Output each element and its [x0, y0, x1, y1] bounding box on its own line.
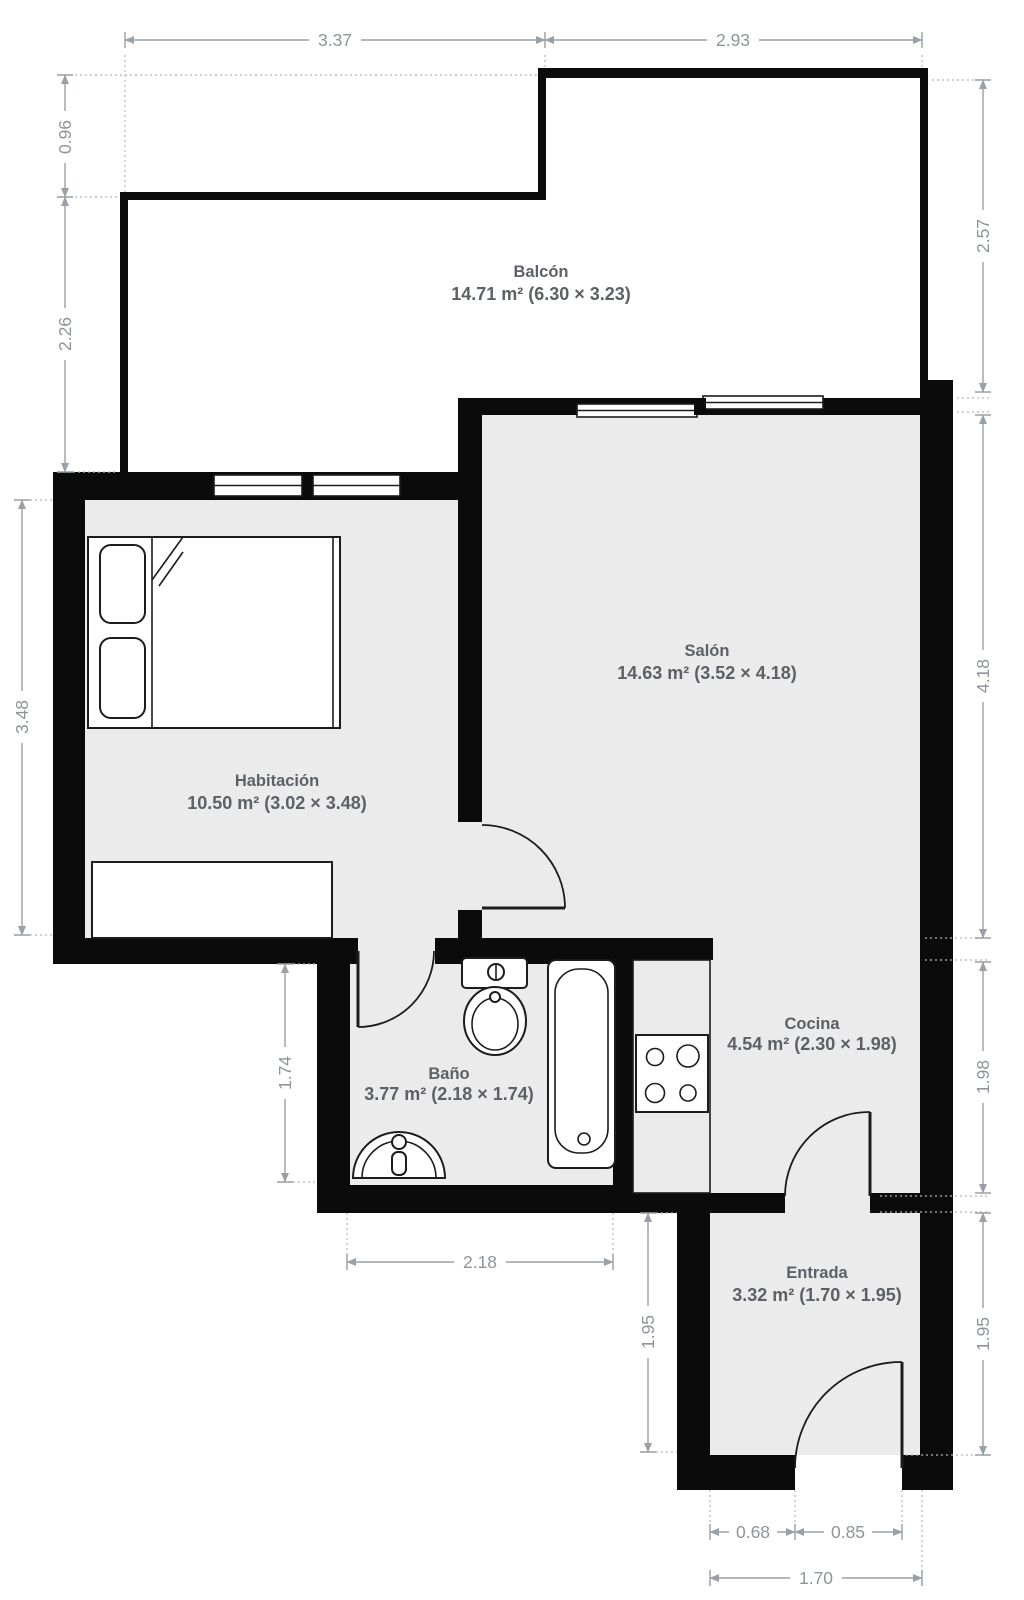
dim-entrada-width: 1.70 [799, 1568, 833, 1588]
dim-top-left: 3.37 [318, 30, 352, 50]
stove [636, 1035, 708, 1112]
room-area-cocina: 4.54 m² (2.30 × 1.98) [727, 1034, 897, 1054]
dim-top-right: 2.93 [716, 30, 750, 50]
room-area-bano: 3.77 m² (2.18 × 1.74) [364, 1084, 534, 1104]
dim-right-salon: 4.18 [973, 659, 993, 693]
room-label-entrada: Entrada [786, 1264, 848, 1282]
pillow [100, 638, 145, 718]
floor-entrada [710, 1213, 920, 1455]
dim-right-entrada: 1.95 [973, 1317, 993, 1351]
bed [88, 537, 340, 728]
dim-right-cocina: 1.98 [973, 1060, 993, 1094]
room-label-cocina: Cocina [784, 1015, 840, 1033]
floor-door-gap [785, 1193, 870, 1213]
dim-bath-height: 1.74 [275, 1056, 295, 1090]
room-label-balcon: Balcón [513, 263, 568, 281]
dim-left-upper: 0.96 [55, 120, 75, 154]
bathtub [548, 960, 615, 1168]
pillow [100, 545, 145, 623]
dim-right-balcony: 2.57 [973, 219, 993, 253]
dim-entry-offset: 0.68 [736, 1522, 770, 1542]
dim-left-mid: 2.26 [55, 317, 75, 351]
floorplan-svg: 3.37 2.93 0.96 2.26 3.48 1.74 2.57 4.18 … [0, 0, 1024, 1600]
dim-bath-width: 2.18 [463, 1252, 497, 1272]
room-area-salon: 14.63 m² (3.52 × 4.18) [617, 663, 797, 683]
toilet [462, 958, 527, 1055]
room-area-habitacion: 10.50 m² (3.02 × 3.48) [187, 793, 367, 813]
dim-entrada-left: 1.95 [638, 1315, 658, 1349]
room-label-habitacion: Habitación [235, 772, 319, 790]
room-area-balcon: 14.71 m² (6.30 × 3.23) [451, 284, 631, 304]
dim-left-bedroom: 3.48 [12, 700, 32, 734]
floorplan-canvas: 3.37 2.93 0.96 2.26 3.48 1.74 2.57 4.18 … [0, 0, 1024, 1600]
room-label-salon: Salón [685, 642, 730, 660]
room-area-entrada: 3.32 m² (1.70 × 1.95) [732, 1285, 902, 1305]
dim-entry-door: 0.85 [831, 1522, 865, 1542]
wardrobe [92, 862, 332, 938]
room-label-bano: Baño [428, 1065, 469, 1083]
